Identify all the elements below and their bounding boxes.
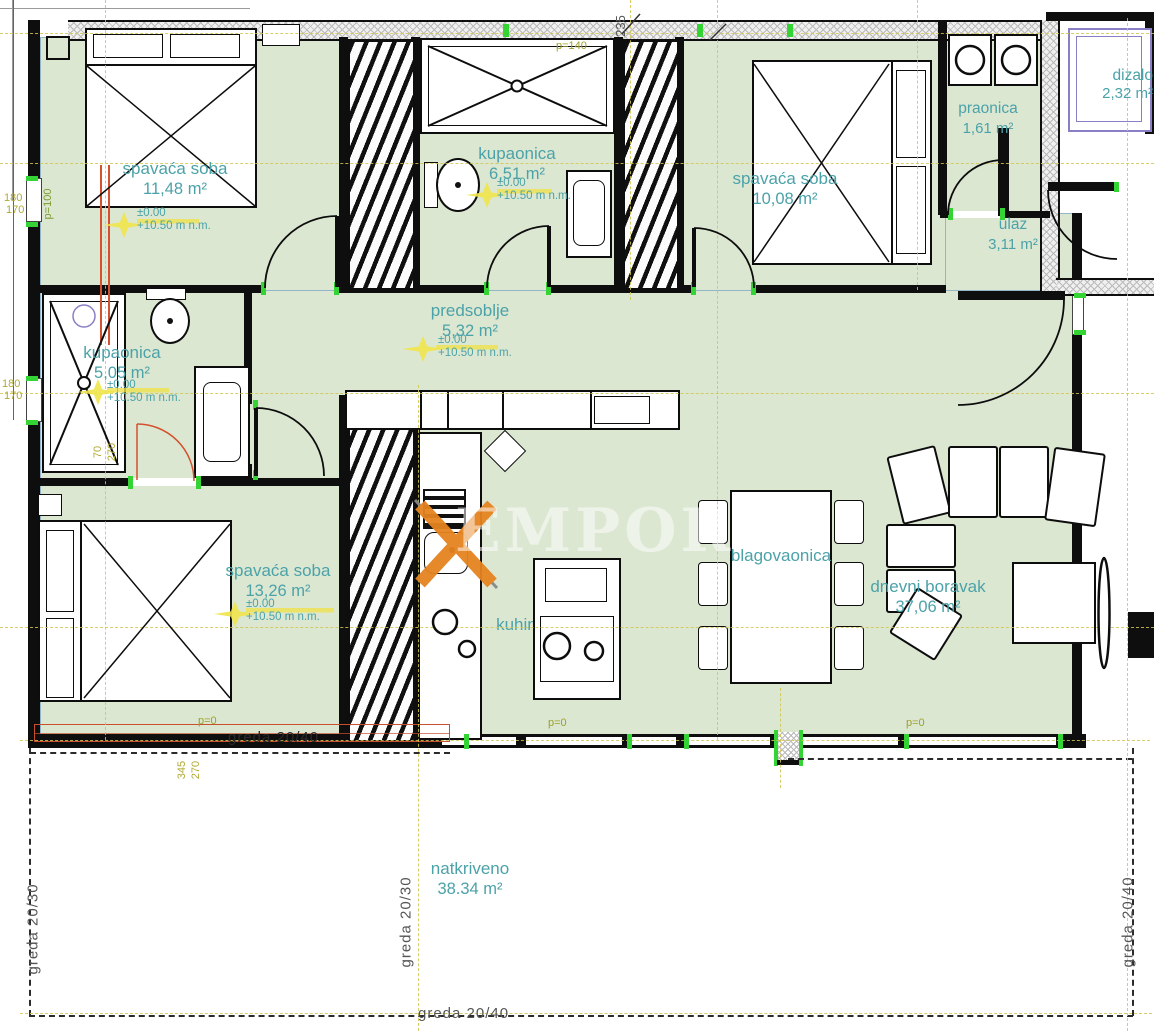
room-label-laundry: praonica 1,61 m² <box>958 98 1017 139</box>
room-name: kupaonica <box>478 143 556 164</box>
wardrobe-strip <box>348 40 415 290</box>
wardrobe-strip <box>348 400 415 742</box>
pillow <box>46 618 74 698</box>
room-label-bedroom-1: spavaća soba 11,48 m² <box>123 158 228 199</box>
opening-tick <box>464 734 469 749</box>
construction-line <box>0 8 250 9</box>
room-label-elevator: dizalo 2,32 m² <box>1085 66 1153 103</box>
dim-270b: 270 <box>106 432 118 472</box>
axis-line <box>0 33 1154 34</box>
wall-core-hatched <box>1040 20 1060 292</box>
room-name: spavaća soba <box>733 168 838 189</box>
pillow <box>93 34 163 58</box>
room-area: 10,08 m² <box>733 189 838 209</box>
opening-tick <box>1058 734 1063 749</box>
opening-tick <box>1074 330 1086 335</box>
window-left-2 <box>26 378 42 422</box>
wall-partition <box>339 395 348 740</box>
opening-tick <box>503 24 509 37</box>
parapet-p0: p=0 <box>548 717 567 729</box>
opening-tick <box>787 24 793 37</box>
terrace-boundary <box>29 748 31 1016</box>
bed-headboard-line <box>85 64 257 66</box>
opening-tick <box>253 400 258 410</box>
beam-label-middle: greda 20/30 <box>398 880 415 968</box>
elevation-value: ±0.00 <box>497 177 571 190</box>
pillow <box>896 166 926 254</box>
room-label-terrace: natkriveno 38.34 m² <box>431 858 509 899</box>
beam-label-bottom: greda 20/40 <box>418 1005 509 1022</box>
room-name: kupaonica <box>83 342 161 363</box>
nightstand <box>46 36 70 60</box>
chair <box>834 562 864 606</box>
opening-tick <box>948 208 953 220</box>
axis-line <box>20 1013 1152 1014</box>
axis-line <box>20 740 1150 741</box>
pillow <box>896 70 926 158</box>
elevation-nm: +10.50 m n.m. <box>438 347 512 360</box>
bed-headboard-line <box>80 520 82 702</box>
room-area: 1,61 m² <box>958 119 1017 139</box>
sofa-cushion <box>886 524 956 568</box>
terrace-boundary <box>788 758 1132 760</box>
room-area: 2,32 m² <box>1085 85 1153 103</box>
dim-180b: 180 <box>2 378 20 390</box>
opening-tick <box>261 282 266 295</box>
room-label-bedroom-3: spavaća soba 13,26 m² <box>226 560 331 601</box>
axis-line <box>717 0 718 740</box>
room-area: 37,06 m² <box>870 597 985 617</box>
door-leaf-stairs <box>1048 182 1118 191</box>
opening-tick <box>128 476 133 489</box>
chair <box>698 626 728 670</box>
parapet-p100: p=100 <box>42 182 54 226</box>
chair <box>834 626 864 670</box>
opening-tick <box>26 222 38 227</box>
elevation-note: ±0.00 +10.50 m n.m. <box>438 334 512 359</box>
opening-tick <box>484 282 489 295</box>
dim-70: 70 <box>92 432 104 472</box>
elevation-value: ±0.00 <box>438 334 512 347</box>
elevation-nm: +10.50 m n.m. <box>107 392 181 405</box>
room-name: spavaća soba <box>226 560 331 581</box>
glass-mullion <box>516 736 526 746</box>
pillow <box>46 530 74 612</box>
axis-line <box>418 385 419 1031</box>
coffee-table <box>1012 562 1096 644</box>
dim-170b: 170 <box>4 390 22 402</box>
terrace-boundary <box>30 752 450 754</box>
room-name: natkriveno <box>431 858 509 879</box>
nightstand <box>262 24 300 46</box>
opening-tick <box>697 24 703 37</box>
counter-divider <box>502 392 504 428</box>
room-area: 38.34 m² <box>431 879 509 899</box>
sofa-cushion <box>1044 447 1106 528</box>
washing-machine <box>994 34 1038 86</box>
room-area: 3,11 m² <box>988 235 1038 255</box>
island-hob-frame <box>540 616 614 682</box>
terrace-boundary <box>29 1015 1133 1017</box>
nightstand <box>38 494 62 516</box>
chair <box>698 562 728 606</box>
pillow <box>170 34 240 58</box>
elevation-nm: +10.50 m n.m. <box>246 611 320 624</box>
toilet-bowl <box>150 298 190 344</box>
room-name: dnevni boravak <box>870 576 985 597</box>
wall-partition <box>938 20 947 215</box>
room-label-entry: ulaz 3,11 m² <box>988 214 1038 255</box>
beam-label-left: greda 20/30 <box>25 887 42 975</box>
room-name: ulaz <box>988 214 1038 235</box>
wall-pier-right <box>1128 612 1154 658</box>
elevation-nm: +10.50 m n.m. <box>497 190 571 203</box>
glass-wall-bottom <box>442 734 1076 748</box>
washing-machine <box>948 34 992 86</box>
opening-tick <box>684 734 689 749</box>
tv-icon <box>1099 558 1110 668</box>
shower-top-inner <box>428 46 607 126</box>
wall-elevator-top <box>1046 12 1154 21</box>
sink-basin <box>203 382 241 462</box>
room-name: predsoblje <box>431 300 509 321</box>
opening-tick <box>26 420 38 425</box>
elevation-note: ±0.00 +10.50 m n.m. <box>246 598 320 623</box>
counter-appliance <box>594 396 650 424</box>
island-top-unit <box>545 568 607 602</box>
window-frame-orange <box>100 165 102 345</box>
door-opening <box>130 478 198 486</box>
room-name: dizalo <box>1085 66 1153 85</box>
wall-core-hatched-h <box>1056 278 1154 296</box>
opening-tick <box>1074 293 1086 298</box>
dim-170: 170 <box>6 204 24 216</box>
parapet-p140: p=140 <box>556 40 587 52</box>
room-label-living: dnevni boravak 37,06 m² <box>870 576 985 617</box>
room-name: blagovaonica <box>731 545 831 566</box>
column-edge <box>799 730 803 766</box>
elevation-note: ±0.00 +10.50 m n.m. <box>107 379 181 404</box>
dim-345: 345 <box>176 750 188 790</box>
opening-tick <box>627 734 632 749</box>
sink-basin <box>573 180 605 246</box>
dim-235: 235 <box>615 9 627 43</box>
opening-tick <box>26 176 38 181</box>
opening-tick <box>1114 182 1119 192</box>
opening-tick <box>904 734 909 749</box>
axis-line <box>0 627 1154 628</box>
elevation-value: ±0.00 <box>107 379 181 392</box>
axis-line <box>780 688 781 788</box>
floor-plan: kuhinja <box>0 0 1154 1031</box>
elevation-value: ±0.00 <box>137 207 211 220</box>
window-frame-orange <box>108 165 110 345</box>
opening-tick <box>751 282 756 295</box>
opening-tick <box>253 470 258 480</box>
room-area: 11,48 m² <box>123 179 228 199</box>
counter-divider <box>420 392 422 428</box>
toilet-bowl <box>436 158 480 212</box>
elevation-nm: +10.50 m n.m. <box>137 220 211 233</box>
counter-divider <box>590 392 592 428</box>
kitchen-column <box>418 432 482 740</box>
elevation-note: ±0.00 +10.50 m n.m. <box>137 207 211 232</box>
room-label-bedroom-2: spavaća soba 10,08 m² <box>733 168 838 209</box>
beam-label-right: greda 20/40 <box>1120 880 1137 968</box>
counter-divider <box>447 392 449 428</box>
window-left-1 <box>26 178 42 222</box>
room-label-bathroom-left: kupaonica 5,05 m² <box>83 342 161 383</box>
room-name: praonica <box>958 98 1017 119</box>
elevation-note: ±0.00 +10.50 m n.m. <box>497 177 571 202</box>
opening-tick <box>26 376 38 381</box>
sofa-cushion <box>948 446 998 518</box>
dim-270: 270 <box>190 750 202 790</box>
dim-180: 180 <box>4 192 22 204</box>
opening-tick <box>334 282 339 295</box>
chair <box>834 500 864 544</box>
axis-line <box>917 0 918 290</box>
door-leaf-entry <box>958 291 1065 300</box>
wardrobe-strip <box>623 40 679 290</box>
room-name: spavaća soba <box>123 158 228 179</box>
beam-label-top: greda 20/40 <box>228 729 319 746</box>
parapet-p0: p=0 <box>198 715 217 727</box>
opening-tick <box>196 476 201 489</box>
elevation-value: ±0.00 <box>246 598 320 611</box>
parapet-p0: p=0 <box>906 717 925 729</box>
room-label-dining: blagovaonica <box>731 545 831 566</box>
sofa-cushion <box>999 446 1049 518</box>
axis-line <box>630 0 631 300</box>
opening-tick <box>691 282 696 295</box>
opening-tick <box>546 282 551 295</box>
door-leaf-laundry <box>998 128 1009 216</box>
